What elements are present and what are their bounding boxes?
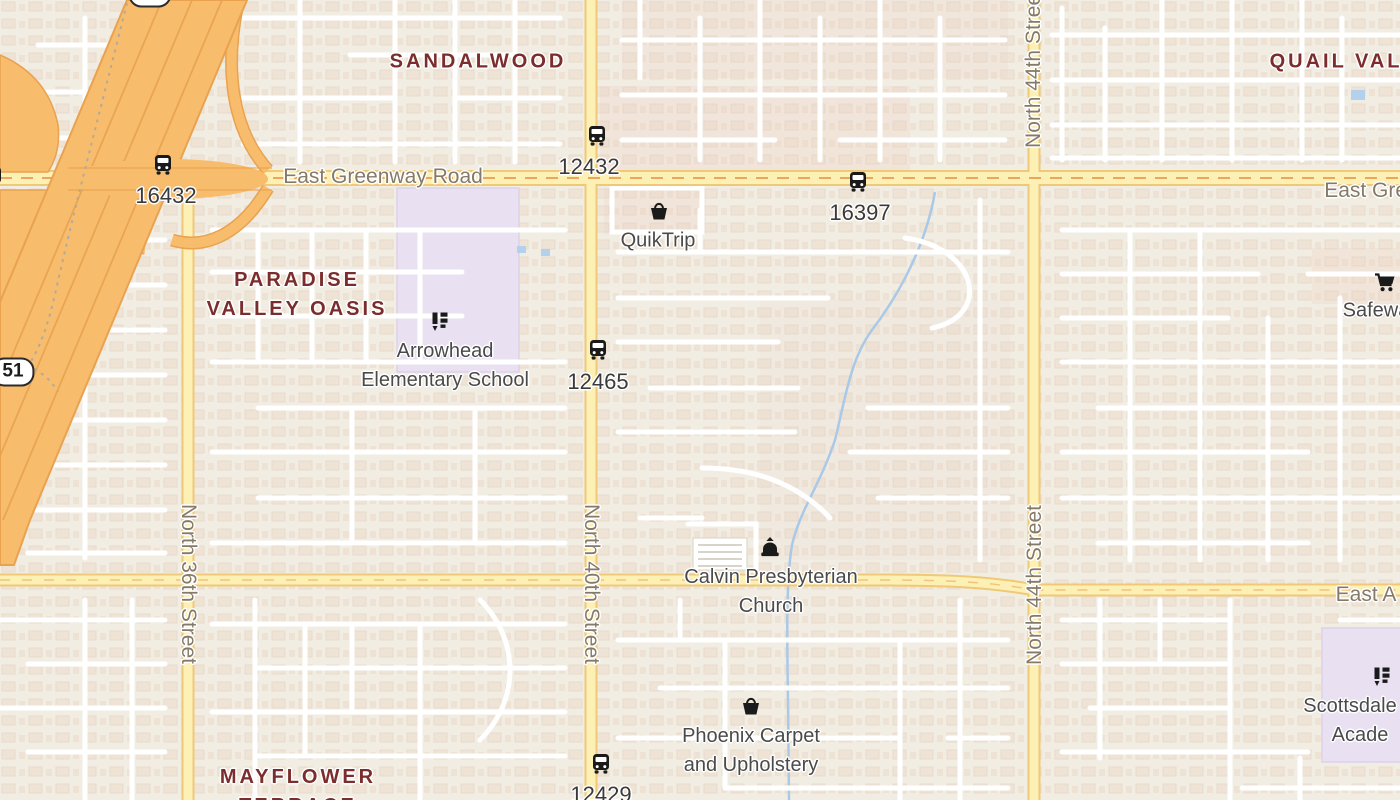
route-51-shield: 51	[128, 0, 171, 8]
poi-label-line: Elementary School	[361, 366, 529, 395]
neighborhood-label-line: TERRACE	[220, 792, 376, 800]
bus-stop-icon[interactable]	[0, 165, 4, 189]
bus-stop-icon[interactable]	[587, 338, 609, 362]
bus-stop-icon[interactable]	[586, 124, 608, 148]
poi-label-line: QuikTrip	[621, 227, 696, 256]
road-name-label: North 40th Street	[579, 504, 603, 664]
school-icon[interactable]	[429, 310, 452, 333]
road-name-label: North 44th Street	[1023, 505, 1047, 665]
poi-label-line: Arrowhead	[361, 337, 529, 366]
map-labels-layer: SANDALWOODPARADISEVALLEY OASISQUAIL VALL…	[0, 0, 1400, 800]
road-name-label: North 36th Street	[176, 504, 200, 664]
bus-stop-icon[interactable]	[152, 153, 174, 177]
bus-stop-icon[interactable]	[847, 170, 869, 194]
poi-label-line: Church	[684, 592, 857, 621]
bus-stop-number[interactable]: 12429	[570, 782, 631, 800]
poi-label[interactable]: Phoenix Carpetand Upholstery	[682, 722, 820, 780]
bus-stop-number[interactable]: 16432	[135, 183, 196, 209]
poi-label-line: Acade	[1303, 721, 1400, 750]
bus-stop-number[interactable]: 12465	[567, 369, 628, 395]
neighborhood-label-line: QUAIL VALLEY	[1270, 48, 1400, 77]
neighborhood-label-line: PARADISE	[207, 266, 388, 295]
neighborhood-label-line: MAYFLOWER	[220, 763, 376, 792]
neighborhood-label: SANDALWOOD	[390, 48, 567, 77]
shopping-basket-icon[interactable]	[740, 695, 762, 717]
bus-stop-number[interactable]: 12432	[558, 154, 619, 180]
shopping-cart-icon[interactable]	[1373, 271, 1397, 293]
poi-label-line: Phoenix Carpet	[682, 722, 820, 751]
road-name-label: East A	[1336, 583, 1397, 607]
poi-label-line: Scottsdale C	[1303, 692, 1400, 721]
neighborhood-label: PARADISEVALLEY OASIS	[207, 266, 388, 324]
neighborhood-label: MAYFLOWERTERRACE	[220, 763, 376, 800]
poi-label-line: Calvin Presbyterian	[684, 563, 857, 592]
poi-label[interactable]: Scottsdale CAcade	[1303, 692, 1400, 750]
road-name-label: East Greenway Road	[1324, 179, 1400, 203]
poi-label-line: Safeway	[1343, 297, 1400, 326]
neighborhood-label-line: SANDALWOOD	[390, 48, 567, 77]
neighborhood-label-line: VALLEY OASIS	[207, 295, 388, 324]
road-name-label: East Greenway Road	[283, 165, 483, 189]
bus-stop-icon[interactable]	[590, 752, 612, 776]
map-canvas[interactable]: SANDALWOODPARADISEVALLEY OASISQUAIL VALL…	[0, 0, 1400, 800]
poi-label[interactable]: Safeway	[1343, 297, 1400, 326]
route-51-shield: 51	[0, 358, 35, 387]
poi-label-line: and Upholstery	[682, 751, 820, 780]
poi-label[interactable]: ArrowheadElementary School	[361, 337, 529, 395]
road-name-label: North 44th Street	[1022, 0, 1046, 148]
shopping-basket-icon[interactable]	[648, 200, 670, 222]
bus-stop-number[interactable]: 16397	[829, 200, 890, 226]
poi-label[interactable]: Calvin PresbyterianChurch	[684, 563, 857, 621]
neighborhood-label: QUAIL VALLEY	[1270, 48, 1400, 77]
school-icon[interactable]	[1371, 665, 1394, 688]
church-icon[interactable]	[759, 536, 782, 558]
poi-label[interactable]: QuikTrip	[621, 227, 696, 256]
